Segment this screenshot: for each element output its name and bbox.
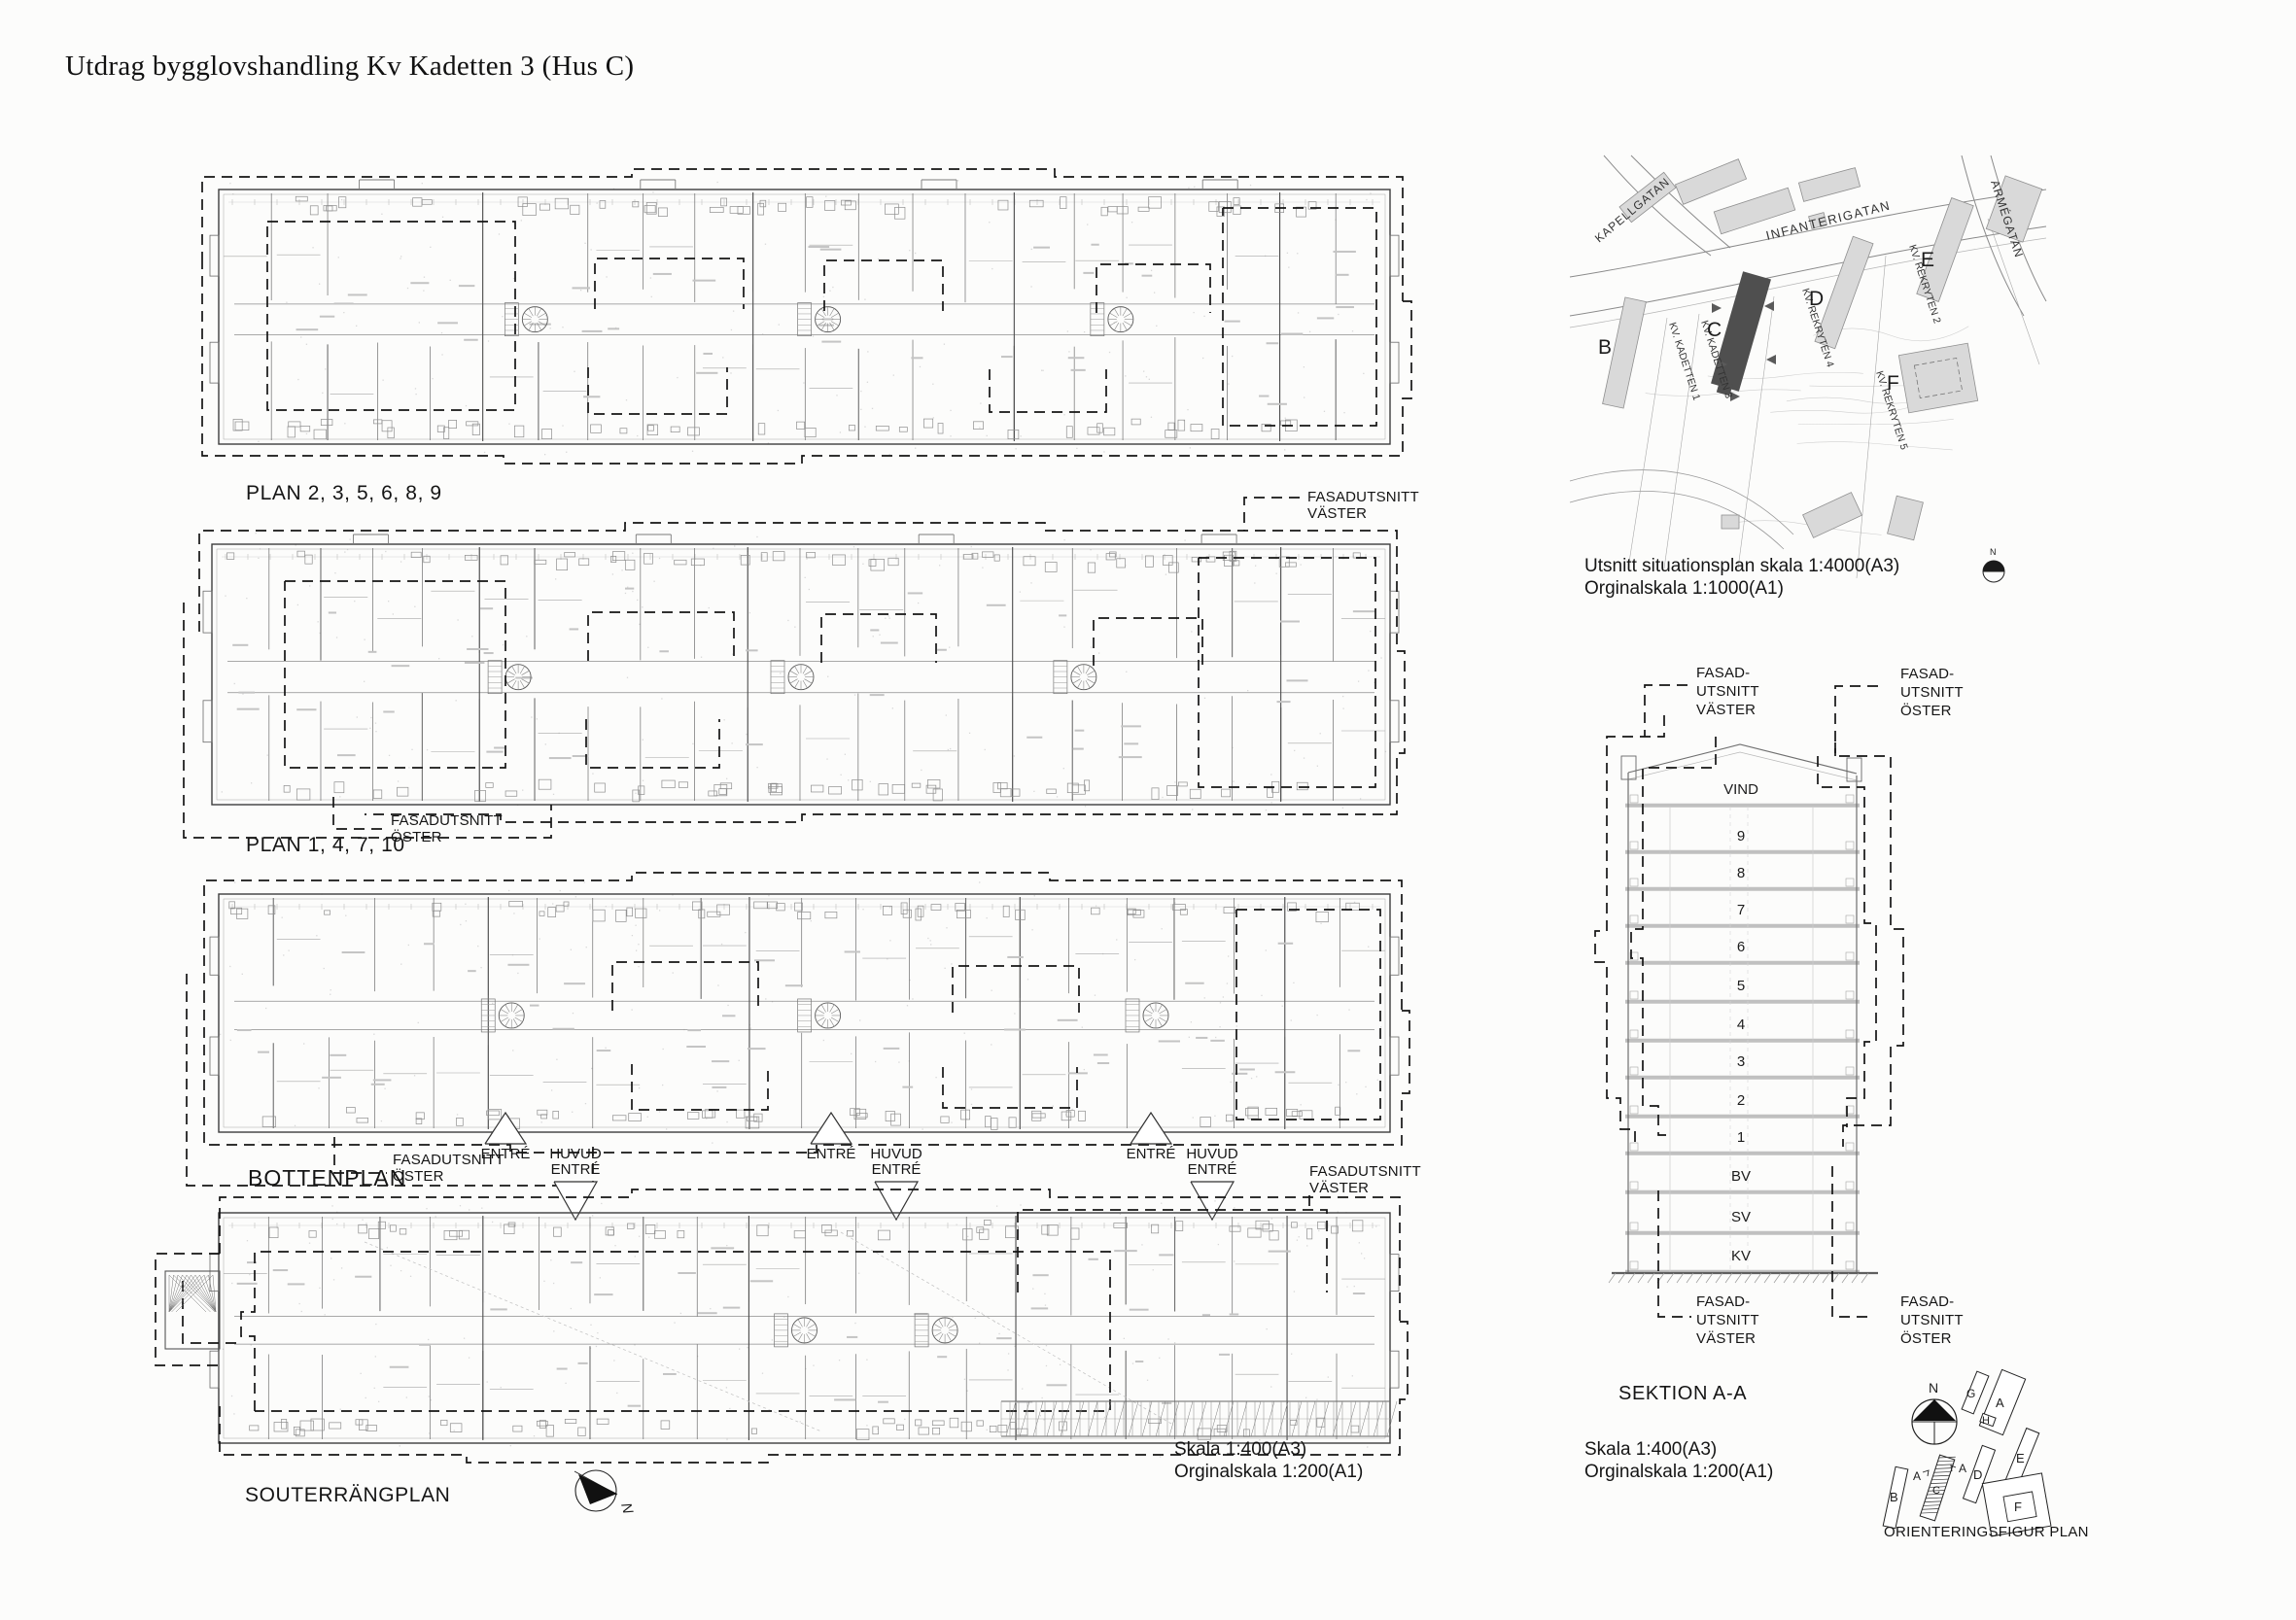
situation-north-icon: N — [1973, 544, 2016, 593]
plan-lower-label: PLAN 1, 4, 7, 10 — [246, 834, 405, 857]
building-letter: F — [1887, 372, 1899, 395]
fasadutsnitt-dashed-outline — [184, 603, 551, 838]
floor-label: 1 — [1737, 1129, 1745, 1146]
entre-label-2: ENTRÉ — [797, 1147, 865, 1162]
fasadutsnitt-dashed-outline — [824, 260, 943, 311]
floor-plan-linework — [210, 177, 1399, 458]
map-building — [1803, 493, 1862, 538]
building-letter: B — [1598, 336, 1612, 359]
map-building — [1798, 168, 1860, 202]
entre-label-1: ENTRÉ — [471, 1147, 539, 1162]
floor-label: 4 — [1737, 1017, 1745, 1033]
fasadutsnitt-dashed-outline — [588, 367, 727, 414]
fasadutsnitt-dashed-outline — [333, 797, 386, 829]
floor-label: 9 — [1737, 828, 1745, 844]
fasadutsnitt-dashed-outline — [183, 1281, 243, 1343]
north-letter: N — [1929, 1380, 1938, 1396]
section-title: SEKTION A-A — [1618, 1383, 1747, 1405]
section-fasadutsnitt-vaster-top: FASAD- UTSNITT VÄSTER — [1696, 664, 1759, 719]
map-building — [1675, 159, 1746, 205]
floorplan-scale: Skala 1:400(A3) Orginalskala 1:200(A1) — [1174, 1439, 1363, 1484]
building-letter: F — [2014, 1499, 2022, 1514]
north-compass-icon: N — [559, 1456, 646, 1534]
street-name-label: KAPELLGATAN — [1592, 175, 1672, 245]
section-mark-letter: A — [1959, 1462, 1966, 1475]
fasadutsnitt-dashed-outline — [204, 873, 1402, 1011]
fasadutsnitt-oster-label-plan-lower: FASADUTSNITT ÖSTER — [391, 812, 503, 845]
section-arrow-icon — [1764, 301, 1774, 311]
floor-label: SV — [1731, 1209, 1751, 1225]
building-letter: E — [1921, 249, 1934, 271]
fasadutsnitt-dashed-outline — [1223, 208, 1376, 426]
fasadutsnitt-dashed-outline — [1236, 910, 1380, 1120]
fasadutsnitt-dashed-outline — [1835, 742, 1903, 1147]
fasadutsnitt-dashed-outline — [821, 614, 936, 663]
fasadutsnitt-dashed-outline — [588, 612, 734, 661]
fasadutsnitt-dashed-outline — [632, 1064, 768, 1110]
north-letter: N — [1990, 547, 1997, 557]
fasadutsnitt-dashed-outline — [612, 962, 758, 1011]
section-fasadutsnitt-vaster-bottom: FASAD- UTSNITT VÄSTER — [1696, 1293, 1759, 1348]
orientation-figure-label: ORIENTERINGSFIGUR PLAN — [1884, 1524, 2089, 1540]
floor-label: BV — [1731, 1168, 1751, 1185]
floor-label: 8 — [1737, 865, 1745, 881]
building-letter: D — [1973, 1467, 1982, 1482]
section-arrow-icon — [1712, 303, 1722, 313]
section-linework — [1609, 744, 1878, 1283]
floor-label: KV — [1731, 1248, 1751, 1264]
situation-caption: Utsnitt situationsplan skala 1:4000(A3) … — [1584, 556, 1899, 601]
fasadutsnitt-dashed-outline — [595, 259, 744, 309]
entre-triangle-icon — [811, 1113, 852, 1144]
fasadutsnitt-dashed-outline — [1631, 737, 1716, 1135]
floor-label: 6 — [1737, 939, 1745, 955]
floor-label: 2 — [1737, 1092, 1745, 1109]
fasadutsnitt-dashed-outline — [1658, 1190, 1691, 1317]
fasadutsnitt-dashed-outline — [365, 651, 1405, 822]
floor-label: 7 — [1737, 902, 1745, 918]
building-letter: D — [1809, 288, 1824, 310]
sheet-title: Utdrag bygglovshandling Kv Kadetten 3 (H… — [65, 51, 634, 83]
fasadutsnitt-dashed-outline — [204, 1001, 1409, 1153]
floor-plan-linework — [203, 533, 1399, 816]
situation-plan-map: KAPELLGATANINFANTERIGATANARMÉGATANKV. KA… — [1575, 160, 2041, 549]
floor-label: VIND — [1723, 781, 1758, 798]
floor-plan-upper-drawing — [175, 165, 1439, 527]
plan-upper-label: PLAN 2, 3, 5, 6, 8, 9 — [246, 482, 442, 505]
section-fasadutsnitt-oster-bottom: FASAD- UTSNITT ÖSTER — [1900, 1293, 1964, 1348]
fasadutsnitt-dashed-outline — [1835, 686, 1878, 756]
building-letter: A — [1996, 1396, 2004, 1410]
building-letter: C — [1707, 319, 1722, 341]
north-letter: N — [617, 1501, 636, 1516]
fasadutsnitt-dashed-outline — [1645, 685, 1687, 737]
floor-plan-lower-drawing — [170, 476, 1434, 889]
fasadutsnitt-dashed-outline — [990, 369, 1106, 412]
fasadutsnitt-dashed-outline — [241, 1252, 1110, 1411]
huvud-entre-label-3: HUVUD ENTRÉ — [1173, 1147, 1251, 1178]
map-building — [1722, 515, 1739, 529]
section-drawing: VIND987654321BVSVKV — [1555, 641, 2022, 1365]
drawing-sheet: Utdrag bygglovshandling Kv Kadetten 3 (H… — [0, 0, 2296, 1620]
map-building — [1888, 496, 1924, 540]
building-letter: G — [1966, 1387, 1975, 1400]
fasadutsnitt-dashed-outline — [1199, 558, 1375, 787]
fasadutsnitt-dashed-outline — [202, 262, 1411, 464]
fasadutsnitt-vaster-label-souterrang: FASADUTSNITT VÄSTER — [1309, 1163, 1421, 1196]
fasadutsnitt-dashed-outline — [267, 222, 515, 410]
floor-label: 3 — [1737, 1053, 1745, 1070]
section-mark-letter: A — [1913, 1469, 1921, 1483]
section-scale: Skala 1:400(A3) Orginalskala 1:200(A1) — [1584, 1439, 1773, 1484]
fasadutsnitt-vaster-label-plan-lower: FASADUTSNITT VÄSTER — [1307, 489, 1419, 522]
building-letter: H — [1982, 1415, 1990, 1427]
building-letter: B — [1890, 1490, 1898, 1504]
floor-label: 5 — [1737, 978, 1745, 994]
entre-triangle-icon — [1131, 1113, 1171, 1144]
fasadutsnitt-dashed-outline — [953, 966, 1079, 1013]
floor-plan-linework — [210, 881, 1399, 1147]
fasadutsnitt-dashed-outline — [199, 523, 1397, 651]
fasadutsnitt-dashed-outline — [285, 581, 505, 768]
north-arrow-icon — [578, 1474, 617, 1504]
bottenplan-label: BOTTENPLAN — [248, 1165, 406, 1191]
fasadutsnitt-dashed-outline — [1094, 618, 1202, 666]
souterrangplan-label: SOUTERRÄNGPLAN — [245, 1484, 450, 1507]
block-name-label: KV. KADETTEN 1 — [1666, 321, 1702, 401]
building-letter: C — [1932, 1485, 1940, 1497]
fasadutsnitt-dashed-outline — [1244, 498, 1300, 531]
fasadutsnitt-dashed-outline — [586, 719, 719, 768]
huvud-entre-label-1: HUVUD ENTRÉ — [537, 1147, 614, 1178]
section-arrow-icon — [1766, 355, 1776, 364]
fasadutsnitt-dashed-outline — [1818, 756, 1876, 1127]
fasadutsnitt-dashed-outline — [1832, 1166, 1874, 1317]
building-letter: E — [2016, 1451, 2025, 1465]
souterrangplan-drawing — [126, 1176, 1448, 1477]
section-fasadutsnitt-oster-top: FASAD- UTSNITT ÖSTER — [1900, 665, 1964, 720]
huvud-entre-label-2: HUVUD ENTRÉ — [857, 1147, 935, 1178]
fasadutsnitt-dashed-outline — [1096, 264, 1210, 313]
